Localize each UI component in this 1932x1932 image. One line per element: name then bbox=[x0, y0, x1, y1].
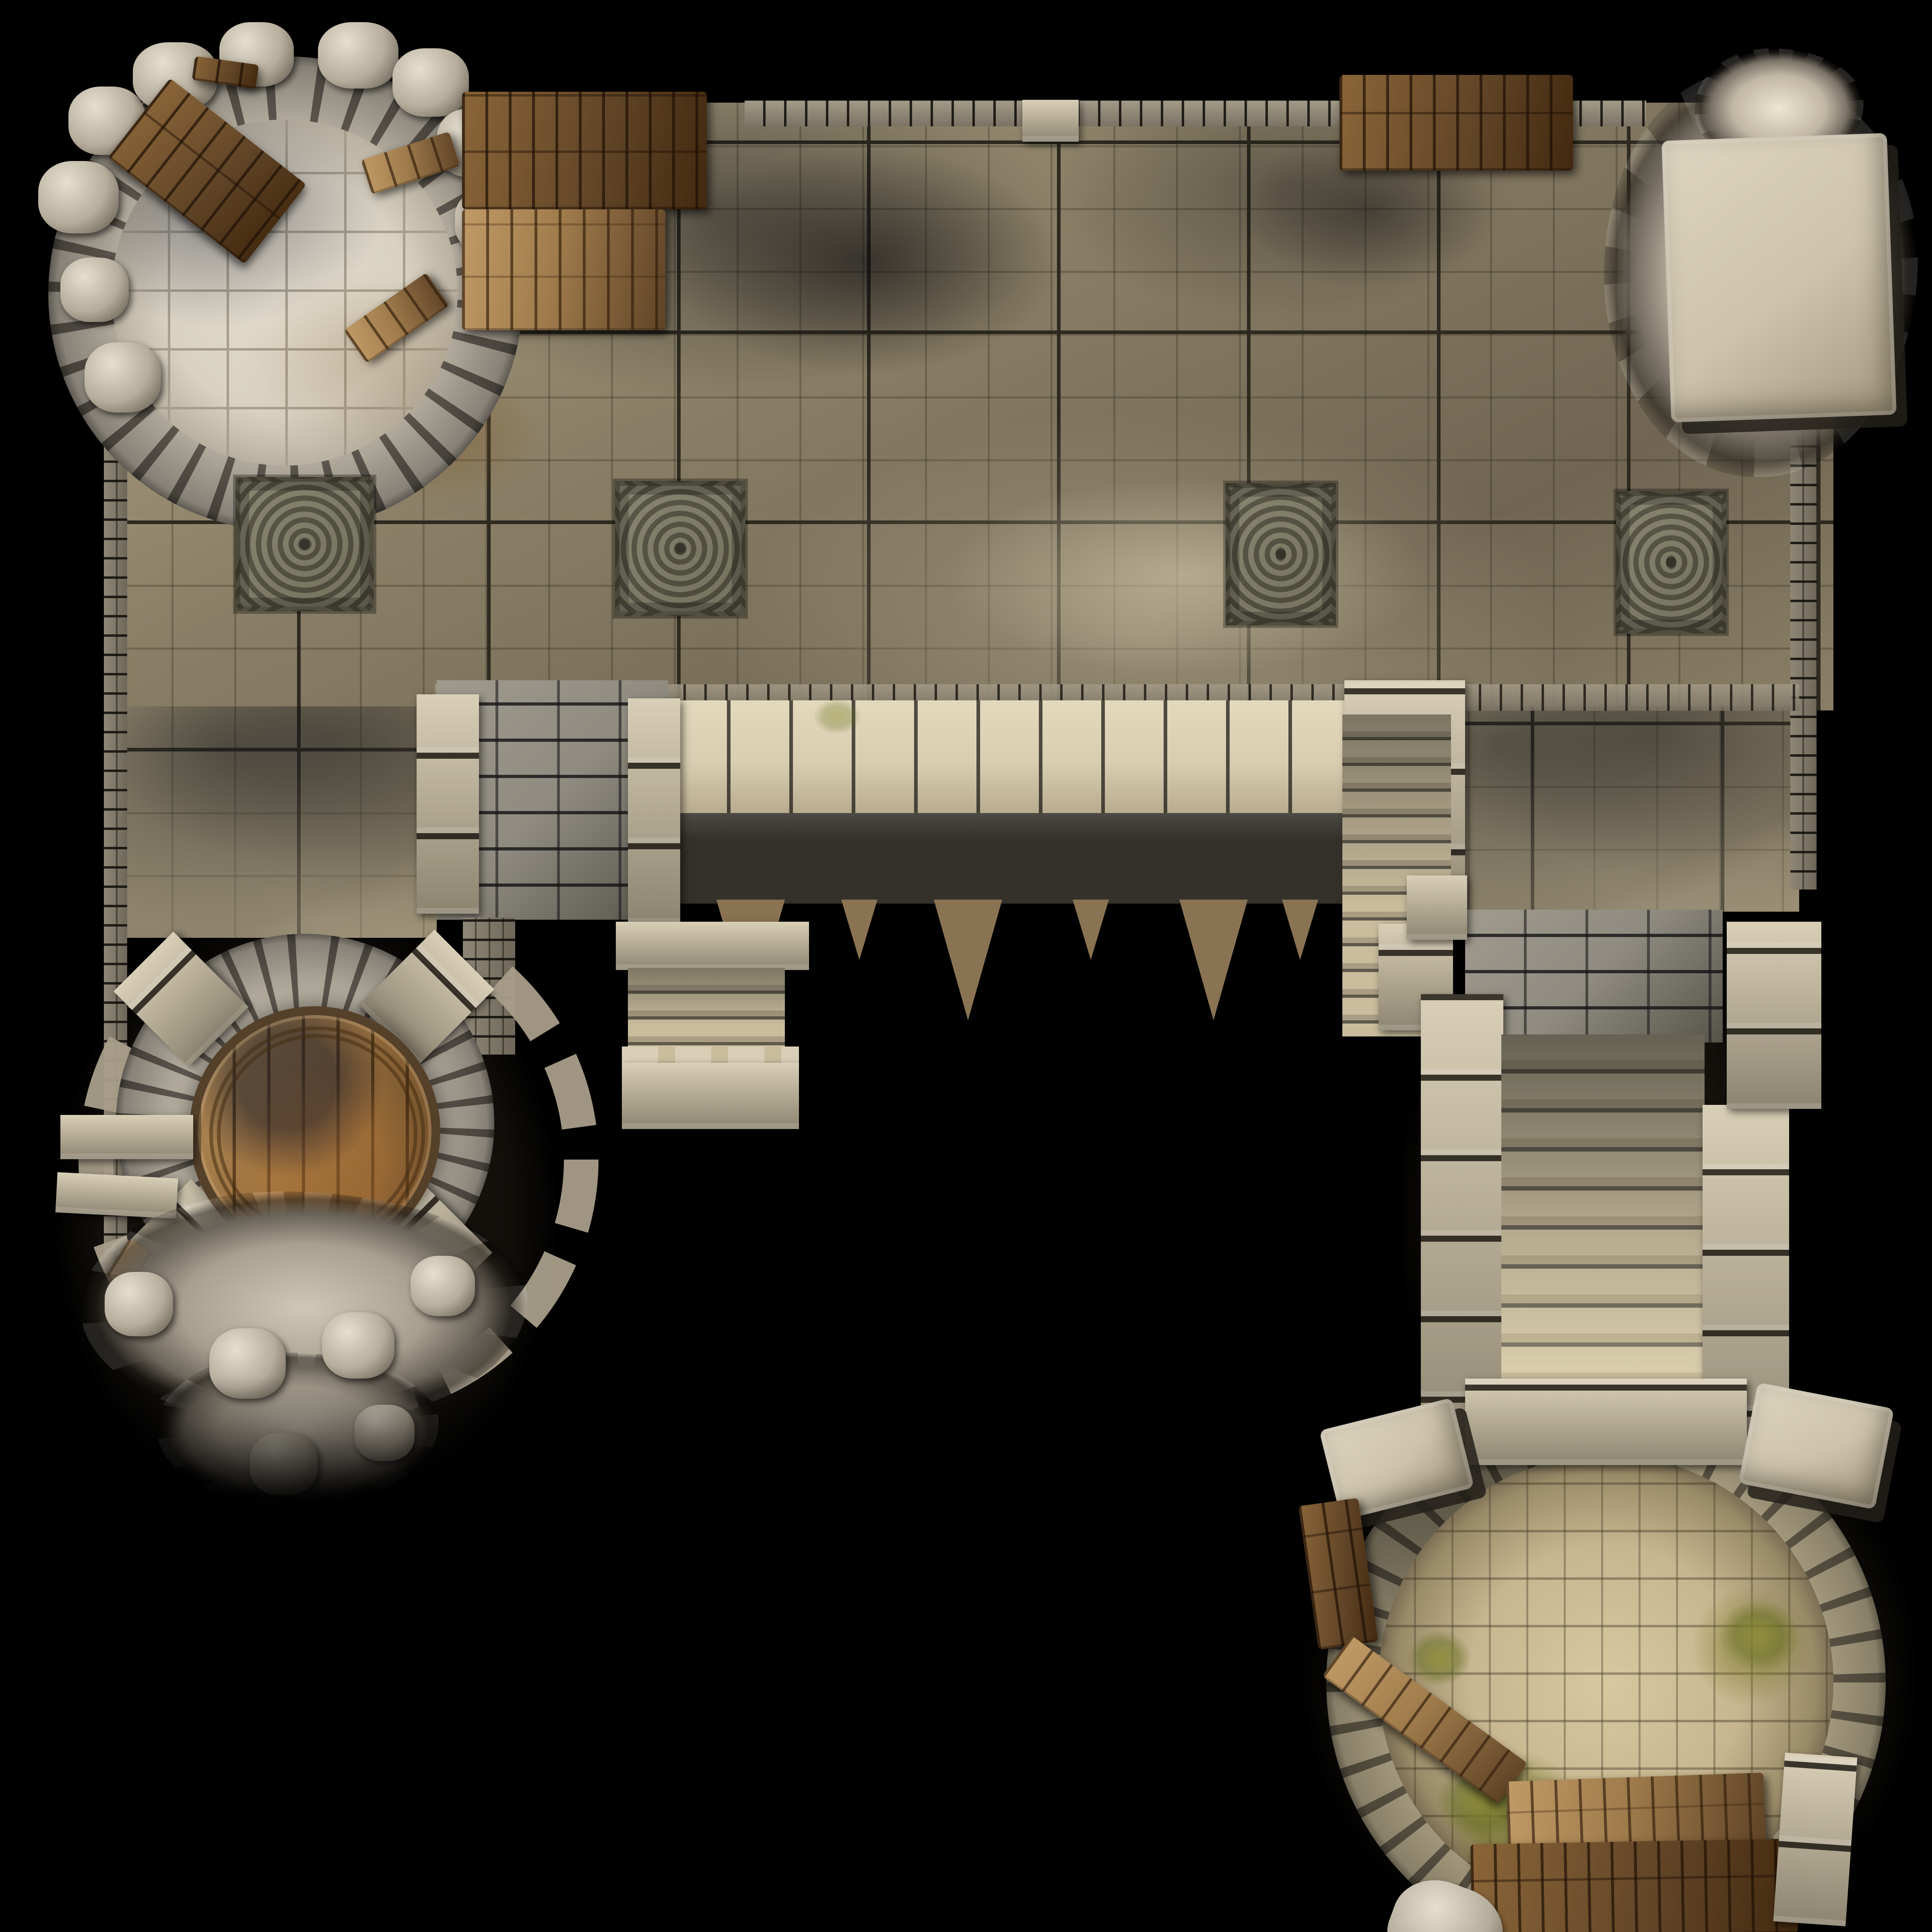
stair-east-upper-blocks bbox=[1727, 922, 1821, 1109]
ne-bridge-planks bbox=[1340, 75, 1573, 171]
gate-spike-small bbox=[1282, 900, 1318, 960]
beam-stone bbox=[56, 1172, 178, 1219]
boulder bbox=[85, 342, 161, 413]
gate-rampart bbox=[668, 700, 1391, 815]
glyph-tile bbox=[235, 477, 374, 611]
nw-bridge-lower-plank bbox=[462, 209, 665, 330]
terrace-ledge-top bbox=[616, 922, 809, 970]
rubble-block bbox=[105, 1272, 173, 1336]
glyph-tile bbox=[1616, 491, 1726, 634]
gate-spike bbox=[934, 900, 1002, 1020]
beam-stone bbox=[60, 1115, 193, 1159]
ne-toppled-slab bbox=[1662, 133, 1897, 422]
gate-shadow-band bbox=[668, 813, 1391, 904]
moss-patch bbox=[813, 698, 861, 735]
battle-map bbox=[0, 0, 1932, 1932]
light-patch bbox=[845, 435, 1529, 716]
tower-buttress bbox=[628, 698, 680, 924]
glyph-tile bbox=[615, 481, 745, 616]
gate-spike bbox=[1179, 900, 1248, 1020]
wall-pillar-block bbox=[1022, 100, 1079, 142]
rubble-block bbox=[411, 1256, 475, 1316]
gate-spike-small bbox=[1073, 900, 1109, 960]
glyph-tile bbox=[1226, 483, 1336, 625]
chamber-cap-slabs bbox=[1465, 1379, 1747, 1465]
stair-flank-blocks bbox=[1407, 875, 1467, 940]
boulder bbox=[60, 258, 129, 322]
gate-spike-small bbox=[841, 900, 877, 960]
boulder bbox=[392, 48, 469, 117]
stair-head-wall bbox=[1465, 910, 1723, 1042]
boulder bbox=[38, 161, 119, 233]
west-wing-floor bbox=[111, 706, 437, 938]
tower-buttress bbox=[417, 694, 479, 914]
landing-stone-pillar bbox=[1773, 1752, 1858, 1926]
rubble-fade bbox=[72, 1377, 539, 1529]
nw-bridge-upper-plank bbox=[462, 92, 707, 209]
moss-patch bbox=[1407, 1630, 1471, 1686]
rubble-block bbox=[322, 1312, 394, 1379]
terrace-ledge-bottom bbox=[622, 1063, 799, 1129]
wooden-landing-lower bbox=[1470, 1839, 1798, 1932]
moss-patch bbox=[1719, 1600, 1799, 1672]
boulder bbox=[318, 22, 398, 89]
